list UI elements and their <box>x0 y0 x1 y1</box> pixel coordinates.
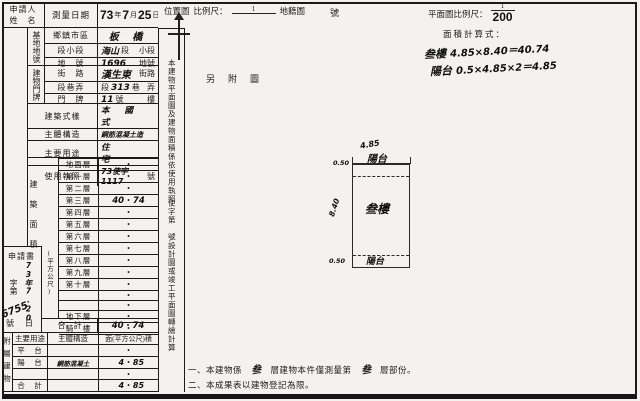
district-row: 鄉鎮市區 板 橋 <box>45 28 158 44</box>
floor-row: 第九層• <box>59 267 158 279</box>
section-value: 海山 段 小段 <box>98 44 158 57</box>
structure-value: 鋼筋混凝土造 <box>98 129 158 140</box>
statement-strip: 本建物平面圖及建物面積係依使用執照 使字第 號設計圖或竣工平面圖轉繪計算 <box>158 28 185 392</box>
date-year: 73 <box>100 8 113 22</box>
section-row: 段小段 海山 段 小段 <box>45 44 158 58</box>
note-1-handwritten-floor2: 叁 <box>359 360 372 377</box>
plan-top-dimension: 4.85 <box>359 138 380 150</box>
floor-label: 第二層 <box>59 183 99 194</box>
plan-scale: 平面圖比例尺： 1 200 <box>428 3 515 24</box>
annex-row-platform: 平 台 • <box>13 345 158 357</box>
annex-header-row: 主要用途 主體構造 面(平方公尺)積 <box>13 333 158 345</box>
floor-row: 地面層• <box>59 159 158 171</box>
floor-area-value: • <box>99 267 158 278</box>
floor-plan-sketch: 4.85 陽台 叁樓 陽台 0.50 8.40 0.50 <box>325 138 455 276</box>
street-value: 漢生東 街路 <box>98 66 158 81</box>
style-row: 建築式樣 本 國 式 <box>28 104 158 129</box>
floor-area-value: • <box>99 183 158 194</box>
application-zidi-label: 字第 <box>8 279 19 295</box>
style-value: 本 國 式 <box>98 104 158 128</box>
header-row: 申請人 姓 名 測量日期 73 年 7 月 25 日 <box>2 2 158 28</box>
annex-building-table: 附屬建物 主要用途 主體構造 面(平方公尺)積 平 台 • 陽 台 鋼筋混凝土 <box>2 332 158 392</box>
location-scale-fraction: 1 <box>232 6 276 17</box>
floor-row: 第八層• <box>59 255 158 267</box>
plan-top-balcony-label: 陽台 <box>367 150 387 165</box>
date-month: 7 <box>122 8 129 22</box>
note-1: 一、本建物係叁層建物本件僅測量第叁層部份。 <box>188 361 416 376</box>
building-info: 建築式樣 本 國 式 主體構造 鋼筋混凝土造 主要用途 住 宅 使用執照 <box>28 104 158 158</box>
floor-area-value: • <box>99 159 158 170</box>
floor-label: 第四層 <box>59 207 99 218</box>
structure-row: 主體構造 鋼筋混凝土造 <box>28 129 158 141</box>
lane-value: 段 313 巷 弄 <box>98 82 158 93</box>
note-1-handwritten-floor: 叁 <box>250 360 263 377</box>
floor-area-value: • <box>99 255 158 266</box>
survey-date-label: 測量日期 <box>45 2 98 27</box>
floor-row: 第十層• <box>59 279 158 291</box>
floor-row: 第七層• <box>59 243 158 255</box>
survey-result-form: 申請人 姓 名 測量日期 73 年 7 月 25 日 位置圖 比例尺： 1 地籍… <box>0 0 640 401</box>
lane-row: 段巷弄 段 313 巷 弄 <box>45 82 158 94</box>
floor-row: • <box>59 291 158 301</box>
site-group-label: 基地地號 <box>28 28 45 65</box>
plan-dim-top-left: 0.50 <box>333 159 349 167</box>
floor-row: 第一層• <box>59 171 158 183</box>
statement-part2: 使字第 <box>168 199 176 225</box>
floor-label <box>59 301 99 310</box>
floor-area-value: • <box>99 243 158 254</box>
area-formula-label: 面積計算式： <box>443 28 506 40</box>
survey-date-value: 73 年 7 月 25 日 <box>98 2 158 27</box>
floor-row: 第四層• <box>59 207 158 219</box>
floor-area-value: • <box>99 219 158 230</box>
floor-label: 第三層 <box>59 195 99 206</box>
address-group-label: 建物門牌 <box>28 66 45 103</box>
floor-area-unit-label: (平方公尺) <box>45 250 52 296</box>
address-group: 建物門牌 街 路 漢生東 街路 段巷弄 段 313 巷 弄 <box>28 66 158 104</box>
floor-label: 第一層 <box>59 171 99 182</box>
plan-top-balcony-strip <box>353 176 409 177</box>
plan-scale-fraction: 1 200 <box>491 3 515 24</box>
floor-row: • <box>59 301 158 311</box>
floor-row: 第二層• <box>59 183 158 195</box>
floor-label: 第八層 <box>59 255 99 266</box>
plan-dim-bottom-left: 0.50 <box>329 257 345 265</box>
applicant-name-field <box>2 28 28 246</box>
application-ri-label: 日 <box>25 318 33 329</box>
plan-bottom-balcony-label: 陽台 <box>366 254 384 267</box>
plan-center-label: 叁樓 <box>365 200 389 217</box>
annex-row-blank: • <box>13 369 158 380</box>
street-row: 街 路 漢生東 街路 <box>45 66 158 82</box>
floor-area-value: • <box>99 207 158 218</box>
floor-area-table: 地面層•第一層•第二層•第三層40•74第四層•第五層•第六層•第七層•第八層•… <box>58 158 158 318</box>
annex-row-balcony: 陽 台 鋼筋混凝土 4 • 85 <box>13 357 158 369</box>
site-group: 基地地號 鄉鎮市區 板 橋 段小段 海山 段 小段 地 號 <box>28 28 158 66</box>
floor-row: 第五層• <box>59 219 158 231</box>
floor-area-value: • <box>99 171 158 182</box>
statement-part1: 本建物平面圖及建物面積係依使用執照 <box>168 59 176 204</box>
floor-total-value: 40 • 74 <box>98 319 158 332</box>
district-value: 板 橋 <box>98 28 158 43</box>
location-scale-suffix: 地籍圖 <box>280 5 306 17</box>
fraction-line <box>232 13 276 17</box>
note-2: 二、本成果表以建物登記為限。 <box>188 379 314 391</box>
floor-row: 第三層40•74 <box>59 195 158 207</box>
floor-label: 第六層 <box>59 231 99 242</box>
plan-scale-denominator: 200 <box>491 10 515 24</box>
floor-label <box>59 291 99 300</box>
application-hao-label: 號 <box>6 318 14 329</box>
plan-dim-left: 8.40 <box>327 197 341 217</box>
statement-part3: 號設計圖或竣工平面圖轉繪計算 <box>168 233 176 352</box>
applicant-name-label: 申請人 姓 名 <box>2 2 45 27</box>
floor-label: 第九層 <box>59 267 99 278</box>
floor-area-value: • <box>99 231 158 242</box>
application-number-box: 申請書 字第 73年7.20 6755 號 日 <box>2 246 42 332</box>
annex-group-label: 附屬建物 <box>2 333 13 391</box>
floor-area-value: • <box>99 291 158 300</box>
date-day: 25 <box>138 8 151 22</box>
application-date-handwritten: 73年7.20 <box>23 261 34 323</box>
sheet-number-label: 號 <box>330 6 339 19</box>
floor-label: 地面層 <box>59 159 99 170</box>
floor-total-row: 合 計 40 • 74 <box>42 318 158 332</box>
floor-row: 第六層• <box>59 231 158 243</box>
floor-area-value: • <box>99 301 158 310</box>
floor-area-value: 40•74 <box>99 195 158 206</box>
floor-area-value: • <box>99 279 158 290</box>
floor-label: 第五層 <box>59 219 99 230</box>
application-title: 申請書 <box>2 251 41 262</box>
attached-map-stamp: 另附圖 <box>206 72 272 85</box>
floor-label: 第十層 <box>59 279 99 290</box>
location-scale-label: 比例尺： <box>194 5 228 17</box>
annex-row-total: 合 計 4 • 85 <box>13 380 158 391</box>
floor-label: 第七層 <box>59 243 99 254</box>
